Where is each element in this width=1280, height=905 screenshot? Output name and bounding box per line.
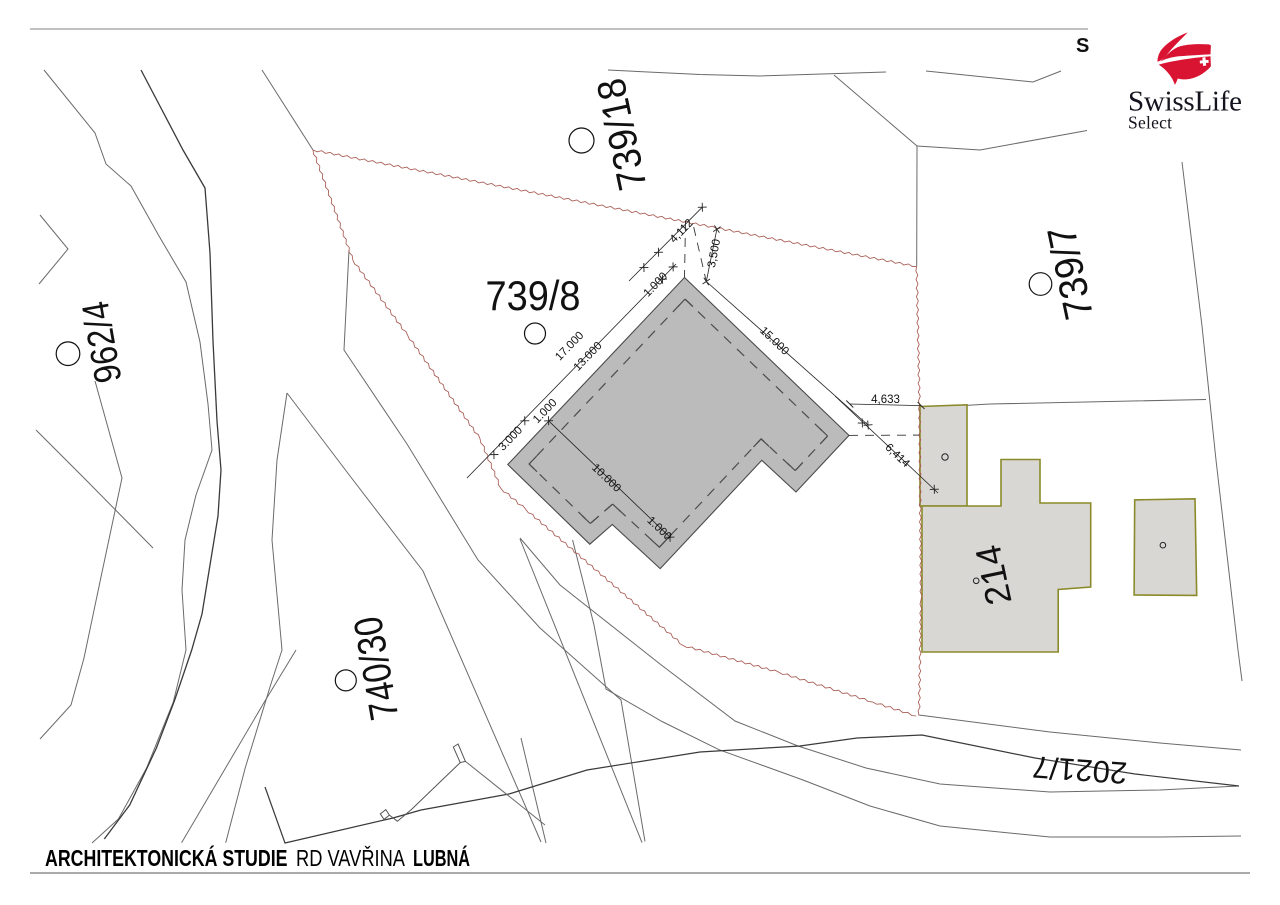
svg-text:739/8: 739/8 — [486, 272, 581, 319]
svg-text:4,633: 4,633 — [871, 394, 900, 406]
svg-text:RD VAVŘINA: RD VAVŘINA — [296, 845, 406, 871]
svg-text:2021/7: 2021/7 — [1031, 749, 1128, 791]
svg-text:ARCHITEKTONICKÁ STUDIE: ARCHITEKTONICKÁ STUDIE — [45, 844, 288, 871]
svg-text:S: S — [1076, 35, 1089, 57]
svg-text:Select: Select — [1128, 113, 1172, 133]
svg-text:LUBNÁ: LUBNÁ — [413, 844, 470, 871]
